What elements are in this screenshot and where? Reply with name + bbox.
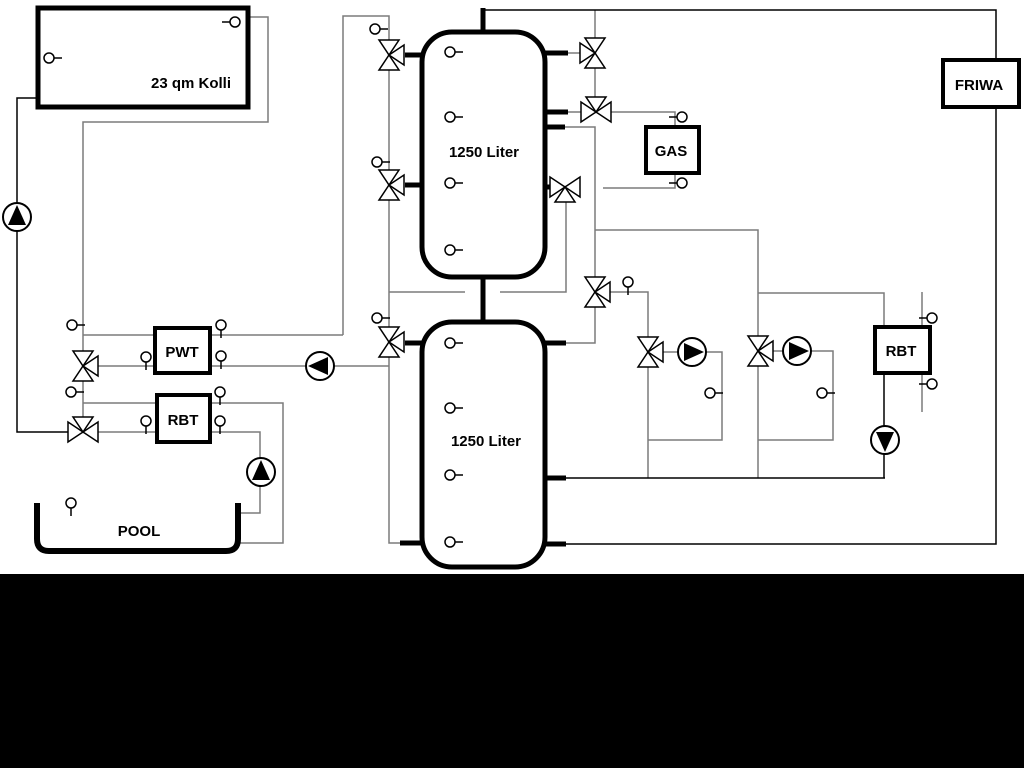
rbt-left-heat-exchanger: RBT: [157, 395, 210, 442]
temp-sensor: [669, 112, 687, 122]
buffer-tank-bottom-label: 1250 Liter: [451, 433, 521, 450]
rbt-right-label: RBT: [886, 343, 917, 360]
solar-collector-label: 23 qm Kolli: [151, 75, 231, 92]
temp-sensor: [669, 178, 687, 188]
three-way-valve-tank1-top-left: [379, 40, 404, 70]
pipe-gas-supply: [611, 112, 675, 127]
pump-collector: [3, 203, 31, 231]
pipe-rbt-left-bot-r: [210, 432, 260, 458]
pool-label: POOL: [118, 523, 161, 540]
pump-buffer-charge: [306, 352, 334, 380]
gas-boiler: GAS: [646, 127, 699, 173]
three-way-valve-tank2-left: [379, 327, 404, 357]
gas-boiler-label: GAS: [655, 143, 688, 160]
buffer-tank-top-label: 1250 Liter: [449, 144, 519, 161]
temp-sensor: [66, 387, 84, 397]
three-way-valve-heating-main: [585, 277, 610, 307]
pipe-collector-return: [17, 98, 68, 432]
buffer-tank-top: 1250 Liter: [422, 32, 545, 277]
solar-collector: 23 qm Kolli: [38, 8, 248, 107]
schematic-canvas: 23 qm Kolli 1250 Liter 1250 Liter GAS FR…: [0, 0, 1024, 768]
pump-heating1: [678, 338, 706, 366]
rbt-right-heat-exchanger: RBT: [875, 327, 930, 373]
pipe-rbt-right-supply: [758, 293, 884, 327]
temp-sensor: [705, 388, 723, 398]
buffer-tank-bottom: 1250 Liter: [422, 322, 545, 567]
temp-sensor-pool: [66, 498, 76, 516]
temp-sensor: [372, 313, 390, 323]
pipe-heating2-supply: [595, 230, 758, 336]
three-way-valve-heating1: [638, 337, 663, 367]
three-way-valve-gas-return: [550, 177, 580, 202]
three-way-valve-tank1-top-right: [580, 38, 605, 68]
temp-sensor: [372, 157, 390, 167]
temp-sensor: [141, 352, 151, 370]
pwt-heat-exchanger: PWT: [155, 328, 210, 373]
pump-pool: [247, 458, 275, 486]
pipe-valve-to-tank2: [565, 307, 595, 343]
pipe-gas-return: [603, 173, 675, 188]
solar-collector-outline: [38, 8, 248, 107]
letterbox-band: [0, 574, 1024, 768]
pipe-pool-feed: [238, 486, 260, 513]
three-way-valve-heating2: [748, 336, 773, 366]
pool-basin: POOL: [37, 503, 238, 551]
three-way-valve-pool: [68, 417, 98, 442]
pwt-label: PWT: [165, 344, 198, 361]
pipe-heating1-supply: [610, 292, 648, 337]
hydraulic-schematic: 23 qm Kolli 1250 Liter 1250 Liter GAS FR…: [0, 0, 1024, 768]
pump-heating2: [783, 337, 811, 365]
pump-rbt-right: [871, 426, 899, 454]
three-way-valve-tank1-mid-left: [379, 170, 404, 200]
rbt-left-label: RBT: [168, 412, 199, 429]
three-way-valve-gas-supply: [581, 97, 611, 122]
temp-sensor: [370, 24, 388, 34]
three-way-valve-pwt: [73, 351, 98, 381]
friwa-station: FRIWA: [943, 60, 1019, 107]
friwa-station-label: FRIWA: [955, 77, 1003, 94]
pipe-to-tank2-bottom: [389, 357, 405, 543]
